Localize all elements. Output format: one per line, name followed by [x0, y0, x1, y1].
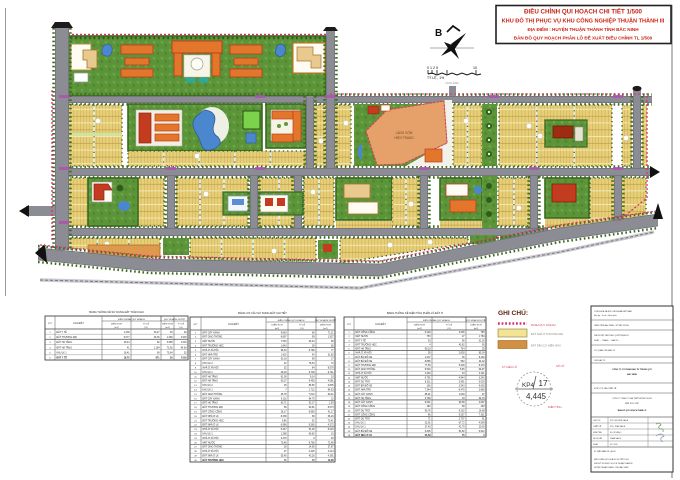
svg-text:1.269: 1.269 — [167, 337, 173, 339]
svg-text:14,80: 14,80 — [309, 447, 315, 449]
svg-text:KHU LK 1: KHU LK 1 — [57, 353, 68, 355]
svg-text:KHU LK 1: KHU LK 1 — [356, 427, 367, 429]
svg-text:6.149: 6.149 — [425, 332, 431, 334]
svg-text:9,96: 9,96 — [282, 420, 287, 422]
svg-text:8.338: 8.338 — [281, 416, 287, 418]
svg-text:1.288: 1.288 — [281, 434, 287, 436]
svg-text:84,79: 84,79 — [309, 398, 315, 400]
svg-text:49,44: 49,44 — [124, 342, 130, 344]
svg-text:9.116: 9.116 — [281, 398, 287, 400]
svg-text:B: B — [435, 28, 442, 39]
svg-text:8.789: 8.789 — [309, 350, 315, 352]
svg-text:(m2): (m2) — [165, 327, 170, 329]
svg-text:6.835: 6.835 — [328, 385, 334, 387]
svg-text:7.012: 7.012 — [309, 394, 315, 396]
svg-text:90,59: 90,59 — [459, 402, 465, 404]
svg-text:9.602: 9.602 — [479, 386, 485, 388]
svg-text:KHU LK 1: KHU LK 1 — [203, 372, 214, 374]
svg-text:ĐỊA ĐIỂM : HUYỆN THUẬN THÀNH T: ĐỊA ĐIỂM : HUYỆN THUẬN THÀNH TỈNH BẮC NI… — [527, 25, 639, 32]
svg-text:LÀNG XÓM: LÀNG XÓM — [396, 130, 413, 135]
svg-text:(m2): (m2) — [323, 328, 328, 330]
svg-text:4.097: 4.097 — [479, 402, 485, 404]
svg-text:90,76: 90,76 — [425, 410, 431, 412]
svg-text:17: 17 — [538, 378, 548, 388]
svg-text:KHU LK 2: KHU LK 2 — [203, 385, 214, 387]
svg-text:STT: STT — [347, 324, 352, 326]
svg-text:93,43: 93,43 — [309, 341, 315, 343]
svg-text:5.030: 5.030 — [479, 381, 485, 383]
svg-text:9.455: 9.455 — [309, 381, 315, 383]
svg-text:6.968: 6.968 — [281, 425, 287, 427]
svg-text:8.579: 8.579 — [328, 368, 334, 370]
svg-text:(m2): (m2) — [114, 327, 119, 329]
svg-text:1.237: 1.237 — [425, 357, 431, 359]
svg-text:2.951: 2.951 — [459, 381, 465, 383]
svg-text:TỶ LỆ , 1%: TỶ LỆ , 1% — [427, 75, 444, 80]
svg-text:1.927: 1.927 — [328, 337, 334, 339]
svg-text:10,98: 10,98 — [328, 460, 334, 462]
svg-text:KHU ĐÔ THỊ PHỤC VỤ KHU CÔNG NG: KHU ĐÔ THỊ PHỤC VỤ KHU CÔNG NGHIỆP THUẬN… — [502, 17, 665, 25]
svg-text:8.073: 8.073 — [328, 407, 334, 409]
svg-text:2.707: 2.707 — [459, 419, 465, 421]
svg-text:6.077: 6.077 — [124, 337, 130, 339]
svg-text:05 / 2019: 05 / 2019 — [610, 444, 618, 446]
svg-text:7.533: 7.533 — [281, 341, 287, 343]
svg-text:RANH QUY HOẠCH: RANH QUY HOẠCH — [531, 323, 556, 327]
svg-text:85,91: 85,91 — [425, 394, 431, 396]
svg-text:8.885: 8.885 — [425, 361, 431, 363]
svg-text:9.738: 9.738 — [309, 372, 315, 374]
svg-text:91,90: 91,90 — [281, 376, 287, 378]
svg-text:6.912: 6.912 — [479, 431, 485, 433]
svg-text:32,70: 32,70 — [479, 398, 485, 400]
svg-text:VÀO LÀNG: VÀO LÀNG — [445, 81, 458, 85]
svg-text:94,53: 94,53 — [328, 390, 334, 392]
svg-text:73,41: 73,41 — [328, 420, 334, 422]
svg-text:9.360: 9.360 — [309, 425, 315, 427]
svg-text:HIỆN TRẠNG: HIỆN TRẠNG — [394, 135, 414, 140]
svg-text:9,14: 9,14 — [310, 376, 315, 378]
svg-text:29,18: 29,18 — [281, 372, 287, 374]
svg-text:STT: STT — [48, 323, 53, 325]
svg-text:43,62: 43,62 — [459, 344, 465, 346]
svg-text:10: 10 — [473, 66, 477, 70]
svg-text:8.446: 8.446 — [479, 357, 485, 359]
svg-text:4.944: 4.944 — [459, 377, 465, 379]
svg-text:51,26: 51,26 — [309, 429, 315, 431]
svg-text:8.475: 8.475 — [459, 390, 465, 392]
svg-text:31,82: 31,82 — [328, 354, 334, 356]
svg-text:69,97: 69,97 — [479, 369, 485, 371]
svg-text:(m2): (m2) — [474, 328, 479, 330]
svg-text:(%): (%) — [179, 327, 183, 329]
svg-text:71,48: 71,48 — [328, 442, 334, 444]
svg-text:2.526: 2.526 — [459, 332, 465, 334]
svg-text:(%): (%) — [300, 328, 304, 330]
svg-text:67,72: 67,72 — [459, 423, 465, 425]
svg-text:1.932: 1.932 — [281, 354, 287, 356]
svg-text:9.546: 9.546 — [425, 369, 431, 371]
svg-text:3.543: 3.543 — [459, 386, 465, 388]
svg-text:30,47: 30,47 — [154, 332, 160, 334]
svg-text:98,30: 98,30 — [281, 350, 287, 352]
svg-text:2.270: 2.270 — [281, 438, 287, 440]
svg-text:6.311: 6.311 — [425, 381, 431, 383]
svg-text:9.531: 9.531 — [425, 402, 431, 404]
svg-text:3.780: 3.780 — [425, 398, 431, 400]
svg-text:75,64: 75,64 — [167, 353, 173, 355]
svg-text:KHU LK 1: KHU LK 1 — [203, 434, 214, 436]
svg-text:2.880: 2.880 — [479, 390, 485, 392]
svg-text:73,50: 73,50 — [167, 347, 173, 349]
svg-text:1.246: 1.246 — [425, 373, 431, 375]
svg-text:41,79: 41,79 — [459, 427, 465, 429]
svg-text:64,60: 64,60 — [181, 347, 187, 349]
svg-text:43,26: 43,26 — [309, 456, 315, 458]
svg-text:25,78: 25,78 — [281, 394, 287, 396]
svg-text:55,45: 55,45 — [281, 456, 287, 458]
svg-text:3.828: 3.828 — [459, 353, 465, 355]
svg-text:34,32: 34,32 — [479, 361, 485, 363]
svg-text:20,39: 20,39 — [479, 427, 485, 429]
svg-text:85,34: 85,34 — [479, 353, 485, 355]
svg-text:7.016: 7.016 — [181, 358, 187, 360]
svg-text:6.791: 6.791 — [425, 377, 431, 379]
svg-text:41,17: 41,17 — [328, 412, 334, 414]
svg-text:3.243: 3.243 — [479, 377, 485, 379]
svg-text:1.784: 1.784 — [479, 336, 485, 338]
svg-text:4.081: 4.081 — [328, 381, 334, 383]
svg-text:0 1 2 5: 0 1 2 5 — [427, 66, 438, 70]
svg-text:46,36: 46,36 — [154, 337, 160, 339]
svg-text:KHU LK 1: KHU LK 1 — [356, 423, 367, 425]
svg-text:85,65: 85,65 — [309, 385, 315, 387]
svg-text:1.016: 1.016 — [181, 342, 187, 344]
svg-text:71,11: 71,11 — [328, 332, 334, 334]
svg-text:9.741: 9.741 — [328, 372, 334, 374]
svg-text:78,64: 78,64 — [309, 363, 315, 365]
svg-text:(%): (%) — [447, 328, 451, 330]
svg-text:4.372: 4.372 — [328, 425, 334, 427]
svg-text:66,20: 66,20 — [328, 416, 334, 418]
svg-text:9.232: 9.232 — [459, 410, 465, 412]
svg-text:1.712: 1.712 — [309, 390, 315, 392]
svg-text:BẢN ĐỒ QUY HOẠCH PHÂN LÔ ĐỀ XU: BẢN ĐỒ QUY HOẠCH PHÂN LÔ ĐỀ XUẤT ĐIỀU CH… — [514, 34, 653, 41]
svg-text:(%): (%) — [144, 327, 148, 329]
svg-text:4.599: 4.599 — [479, 423, 485, 425]
svg-text:1.184: 1.184 — [154, 347, 160, 349]
svg-text:ĐIỀU CHỈNH QUI HOẠCH CHI TIẾT: ĐIỀU CHỈNH QUI HOẠCH CHI TIẾT 1/500 — [524, 9, 642, 16]
svg-text:77,65: 77,65 — [425, 365, 431, 367]
svg-text:1.630: 1.630 — [459, 394, 465, 396]
svg-text:4,445: 4,445 — [526, 392, 547, 401]
svg-text:1,59: 1,59 — [329, 403, 334, 405]
svg-text:90,23: 90,23 — [425, 349, 431, 351]
svg-text:32,91: 32,91 — [425, 423, 431, 425]
svg-text:52,17: 52,17 — [309, 403, 315, 405]
svg-text:18,41: 18,41 — [124, 353, 130, 355]
svg-text:63,18: 63,18 — [281, 359, 287, 361]
svg-text:7.351: 7.351 — [479, 414, 485, 416]
svg-text:70,48: 70,48 — [281, 442, 287, 444]
svg-text:6,65: 6,65 — [460, 369, 465, 371]
svg-text:90,81: 90,81 — [309, 407, 315, 409]
svg-text:2.903: 2.903 — [181, 337, 187, 339]
svg-text:37,40: 37,40 — [425, 427, 431, 429]
svg-text:3.605: 3.605 — [425, 431, 431, 433]
svg-text:KHU LK 2: KHU LK 2 — [203, 363, 214, 365]
svg-text:60,41: 60,41 — [328, 394, 334, 396]
svg-text:18,75: 18,75 — [124, 358, 130, 360]
svg-text:5.239: 5.239 — [459, 365, 465, 367]
svg-text:4.391: 4.391 — [328, 456, 334, 458]
svg-text:28,17: 28,17 — [281, 412, 287, 414]
svg-text:9.863: 9.863 — [281, 332, 287, 334]
svg-text:80,82: 80,82 — [309, 434, 315, 436]
svg-text:4.214: 4.214 — [328, 451, 334, 453]
svg-text:1.843: 1.843 — [281, 346, 287, 348]
svg-text:5.247: 5.247 — [281, 429, 287, 431]
svg-text:Độc lập - Tự do - Hạnh phúc: Độc lập - Tự do - Hạnh phúc — [594, 315, 617, 317]
svg-text:63,37: 63,37 — [281, 381, 287, 383]
svg-text:37,87: 37,87 — [328, 447, 334, 449]
svg-text:8.479: 8.479 — [479, 365, 485, 367]
svg-text:53,52: 53,52 — [459, 431, 465, 433]
svg-text:2.141: 2.141 — [479, 373, 485, 375]
svg-text:16,68: 16,68 — [479, 410, 485, 412]
svg-text:31,30: 31,30 — [479, 340, 485, 342]
svg-text:9.257: 9.257 — [459, 414, 465, 416]
svg-text:GHI CHÚ:: GHI CHÚ: — [498, 308, 528, 317]
svg-text:3.698: 3.698 — [167, 342, 173, 344]
svg-text:KHU LK 1: KHU LK 1 — [203, 390, 214, 392]
svg-text:4.425: 4.425 — [309, 451, 315, 453]
svg-text:1.239: 1.239 — [124, 332, 130, 334]
svg-text:63,71: 63,71 — [281, 403, 287, 405]
svg-text:STT: STT — [193, 324, 198, 326]
svg-text:(m2): (m2) — [417, 328, 422, 330]
svg-text:8.983: 8.983 — [309, 412, 315, 414]
svg-text:8.897: 8.897 — [281, 337, 287, 339]
svg-text:KP4: KP4 — [522, 382, 535, 389]
svg-text:8.766: 8.766 — [309, 442, 315, 444]
svg-text:(m2): (m2) — [275, 328, 280, 330]
svg-text:7.344: 7.344 — [425, 390, 431, 392]
svg-text:5.015: 5.015 — [328, 429, 334, 431]
